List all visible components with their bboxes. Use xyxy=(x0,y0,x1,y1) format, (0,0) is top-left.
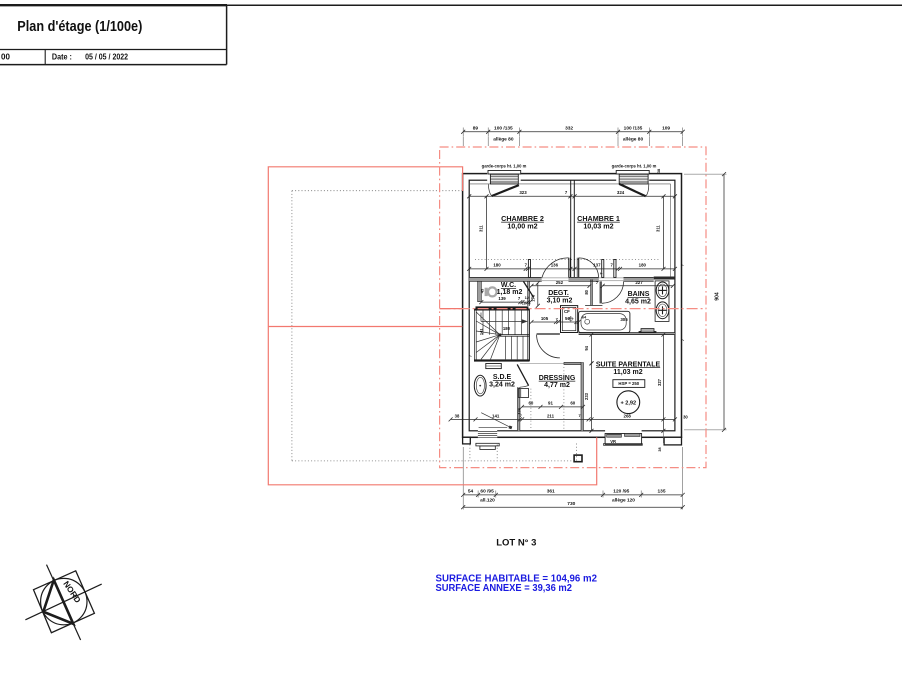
svg-text:94: 94 xyxy=(584,345,589,350)
svg-text:268: 268 xyxy=(624,413,632,418)
svg-text:38: 38 xyxy=(658,447,662,451)
svg-text:CF: CF xyxy=(564,309,570,314)
svg-text:227: 227 xyxy=(635,280,643,285)
svg-text:BAINS: BAINS xyxy=(628,291,650,298)
svg-text:3,10 m2: 3,10 m2 xyxy=(547,298,573,305)
svg-text:7: 7 xyxy=(681,264,685,266)
svg-text:100 /135: 100 /135 xyxy=(624,126,643,132)
svg-text:30: 30 xyxy=(683,415,688,420)
svg-text:137: 137 xyxy=(593,263,601,268)
svg-text:60 /95: 60 /95 xyxy=(480,489,494,495)
svg-text:VR: VR xyxy=(610,439,616,444)
svg-text:141: 141 xyxy=(479,328,484,335)
svg-text:allège 120: allège 120 xyxy=(612,497,635,503)
svg-text:05 / 05 / 2022: 05 / 05 / 2022 xyxy=(85,53,128,62)
svg-text:38: 38 xyxy=(455,413,460,418)
svg-text:100 /135: 100 /135 xyxy=(494,126,513,132)
svg-text:DEGT.: DEGT. xyxy=(548,290,569,297)
svg-text:80: 80 xyxy=(584,289,589,294)
svg-text:60: 60 xyxy=(528,401,533,406)
svg-text:730: 730 xyxy=(567,501,575,507)
svg-text:89: 89 xyxy=(473,126,479,132)
svg-text:7: 7 xyxy=(681,339,685,341)
svg-text:332: 332 xyxy=(565,126,573,132)
svg-text:211: 211 xyxy=(547,413,555,418)
svg-text:LOT N° 3: LOT N° 3 xyxy=(496,538,536,549)
svg-text:00: 00 xyxy=(1,53,10,62)
svg-text:SUITE PARENTALE: SUITE PARENTALE xyxy=(596,361,661,368)
svg-text:38: 38 xyxy=(656,168,661,173)
svg-text:136: 136 xyxy=(551,263,559,268)
svg-text:109: 109 xyxy=(662,126,670,132)
svg-text:7: 7 xyxy=(600,272,604,274)
svg-text:323: 323 xyxy=(519,190,527,195)
svg-text:139: 139 xyxy=(498,296,506,301)
svg-text:105: 105 xyxy=(541,316,549,321)
svg-text:120 /95: 120 /95 xyxy=(613,489,629,495)
svg-text:11,03 m2: 11,03 m2 xyxy=(613,369,642,376)
svg-text:904: 904 xyxy=(715,292,721,301)
svg-text:1,18 m2: 1,18 m2 xyxy=(497,289,523,296)
svg-text:10,03 m2: 10,03 m2 xyxy=(583,222,613,231)
svg-text:176: 176 xyxy=(531,294,536,302)
svg-text:135: 135 xyxy=(657,489,665,495)
svg-text:311: 311 xyxy=(479,225,484,232)
svg-text:180: 180 xyxy=(493,263,501,268)
svg-text:311: 311 xyxy=(656,225,661,232)
svg-text:garde-corps ht. 1,00 m: garde-corps ht. 1,00 m xyxy=(482,164,527,169)
svg-text:141: 141 xyxy=(492,413,500,418)
svg-text:DRESSING: DRESSING xyxy=(539,375,576,382)
svg-text:Plan d'étage (1/100e): Plan d'étage (1/100e) xyxy=(17,18,142,35)
svg-text:garde-corps ht. 1,00 m: garde-corps ht. 1,00 m xyxy=(612,164,657,169)
svg-text:S.D.E: S.D.E xyxy=(493,374,512,381)
svg-text:3,24 m2: 3,24 m2 xyxy=(489,381,515,388)
svg-text:50: 50 xyxy=(565,316,570,321)
svg-text:91: 91 xyxy=(548,401,553,406)
svg-text:7: 7 xyxy=(469,355,473,357)
svg-text:180: 180 xyxy=(503,326,511,331)
svg-text:4,77 m2: 4,77 m2 xyxy=(544,382,570,389)
svg-text:SURFACE ANNEXE = 39,36 m2: SURFACE ANNEXE = 39,36 m2 xyxy=(436,583,573,594)
svg-text:Date :: Date : xyxy=(52,53,72,62)
svg-text:allège 80: allège 80 xyxy=(493,137,514,143)
svg-text:W.C.: W.C. xyxy=(501,282,516,289)
svg-text:HSP = 250: HSP = 250 xyxy=(618,381,639,386)
svg-text:18: 18 xyxy=(522,301,526,305)
svg-text:12: 12 xyxy=(525,295,530,300)
svg-text:all.120: all.120 xyxy=(480,497,495,503)
svg-text:233: 233 xyxy=(584,392,589,400)
svg-text:361: 361 xyxy=(547,489,555,495)
svg-text:+ 2,92: + 2,92 xyxy=(620,400,636,406)
svg-text:60: 60 xyxy=(570,401,575,406)
svg-text:324: 324 xyxy=(617,190,625,195)
svg-text:327: 327 xyxy=(657,378,662,386)
svg-text:252: 252 xyxy=(556,280,564,285)
svg-text:10,00 m2: 10,00 m2 xyxy=(507,222,537,231)
svg-text:allège 80: allège 80 xyxy=(623,137,644,143)
svg-text:54: 54 xyxy=(468,489,474,495)
svg-text:4,65 m2: 4,65 m2 xyxy=(625,298,651,305)
svg-text:180: 180 xyxy=(639,263,647,268)
svg-text:45: 45 xyxy=(480,288,485,293)
svg-text:305: 305 xyxy=(620,317,628,322)
